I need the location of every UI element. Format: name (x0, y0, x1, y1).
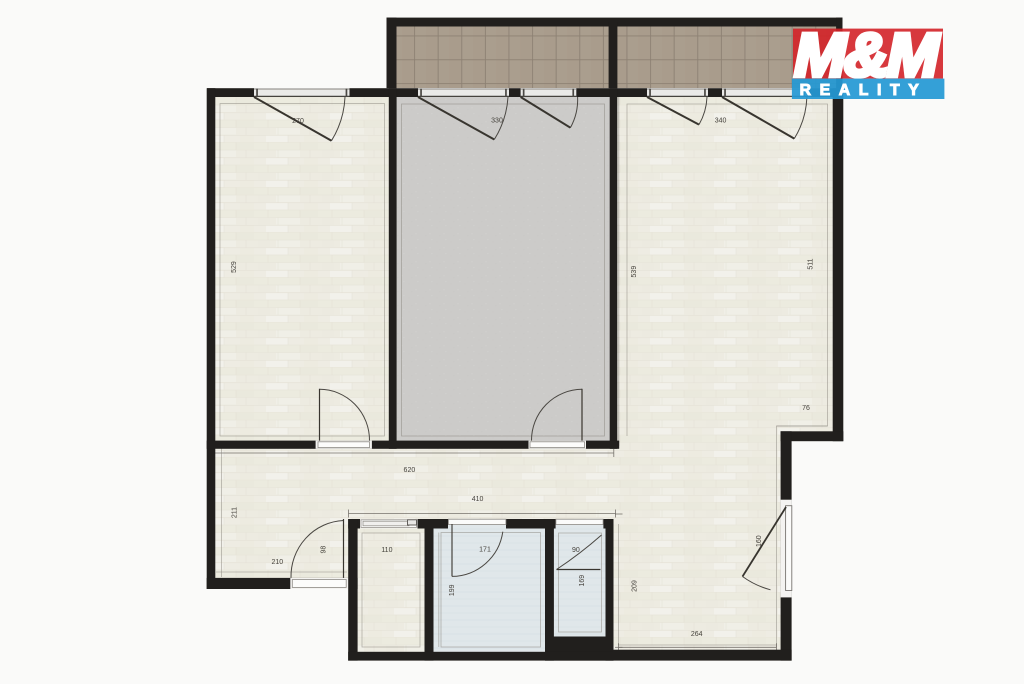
svg-text:76: 76 (802, 405, 810, 412)
svg-text:90: 90 (572, 547, 580, 554)
svg-text:110: 110 (381, 547, 392, 554)
svg-text:511: 511 (808, 258, 815, 269)
svg-text:539: 539 (631, 266, 638, 278)
svg-text:264: 264 (691, 631, 703, 638)
svg-text:340: 340 (715, 118, 727, 125)
svg-text:160: 160 (756, 535, 763, 547)
svg-text:98: 98 (321, 546, 328, 554)
svg-text:169: 169 (579, 575, 586, 587)
svg-text:210: 210 (271, 559, 283, 566)
svg-text:171: 171 (479, 547, 491, 554)
svg-text:620: 620 (404, 467, 416, 474)
svg-text:REALITY: REALITY (800, 82, 928, 99)
svg-text:330: 330 (491, 118, 503, 125)
svg-text:410: 410 (472, 496, 484, 503)
svg-text:270: 270 (292, 118, 304, 125)
svg-text:529: 529 (231, 261, 238, 273)
svg-text:209: 209 (632, 580, 639, 592)
svg-text:211: 211 (231, 507, 238, 518)
svg-text:199: 199 (449, 584, 456, 596)
